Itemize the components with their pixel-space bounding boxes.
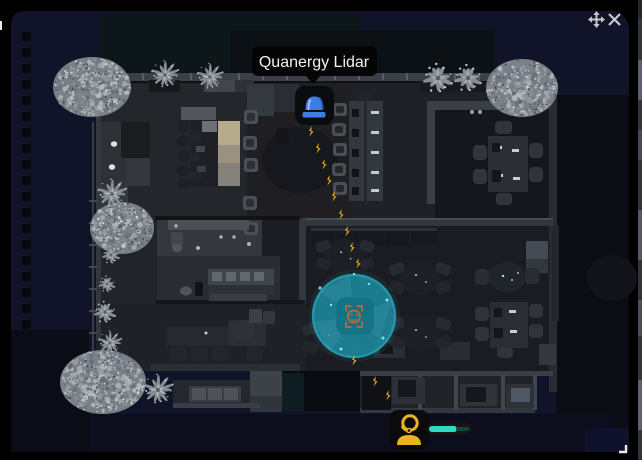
svg-text:Quanergy Lidar: Quanergy Lidar <box>259 54 370 71</box>
